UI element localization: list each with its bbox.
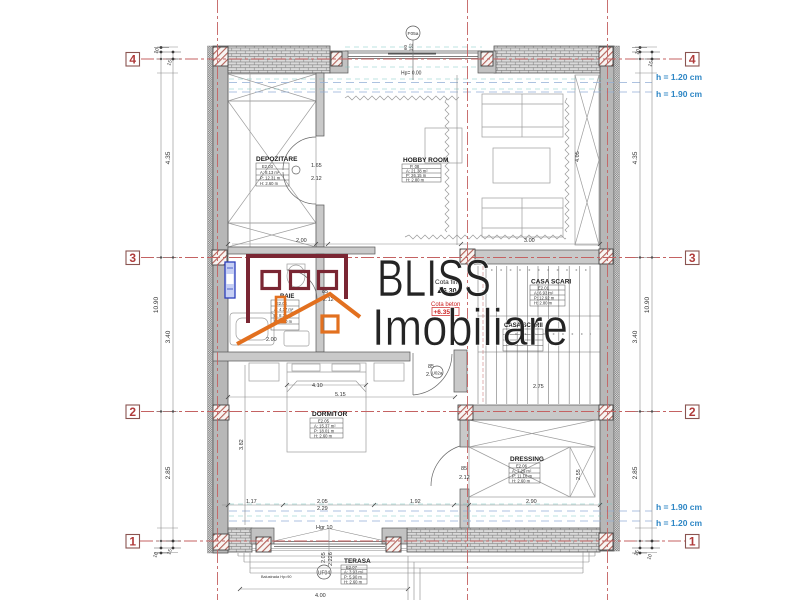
svg-text:1.65: 1.65 xyxy=(311,163,322,169)
svg-text:4.00: 4.00 xyxy=(315,593,326,599)
svg-text:85: 85 xyxy=(461,466,467,472)
svg-text:60: 60 xyxy=(403,44,408,50)
svg-text:10.90: 10.90 xyxy=(153,296,160,313)
svg-text:3.00: 3.00 xyxy=(524,238,535,244)
svg-text:Hgr 10: Hgr 10 xyxy=(316,525,333,531)
svg-text:2.85: 2.85 xyxy=(632,466,639,479)
svg-text:DORMITOR: DORMITOR xyxy=(312,411,348,418)
svg-text:1: 1 xyxy=(689,535,696,549)
svg-text:DRESSING: DRESSING xyxy=(510,456,544,463)
svg-text:H: 2.80 m: H: 2.80 m xyxy=(406,178,425,183)
svg-text:2.00: 2.00 xyxy=(266,337,277,343)
svg-text:2: 2 xyxy=(129,405,136,419)
svg-text:2.05: 2.05 xyxy=(321,552,327,563)
svg-text:4: 4 xyxy=(689,53,696,67)
svg-text:U02a: U02a xyxy=(432,371,443,376)
svg-text:CASA SCARI: CASA SCARI xyxy=(531,279,571,286)
svg-text:P: 12.31 m: P: 12.31 m xyxy=(260,176,281,181)
svg-text:2.55: 2.55 xyxy=(576,469,582,480)
svg-text:UF04: UF04 xyxy=(318,571,330,577)
svg-text:2.90: 2.90 xyxy=(526,499,537,505)
svg-text:2.75: 2.75 xyxy=(533,384,544,390)
svg-text:A: 8.13 m²: A: 8.13 m² xyxy=(260,170,280,175)
svg-text:4.35: 4.35 xyxy=(165,151,172,164)
svg-text:H: 2.60 m: H: 2.60 m xyxy=(344,580,363,585)
svg-text:F05a: F05a xyxy=(408,31,419,37)
svg-text:h = 1.20 cm: h = 1.20 cm xyxy=(656,518,703,528)
svg-text:1.17: 1.17 xyxy=(246,499,257,505)
svg-text:2.05: 2.05 xyxy=(317,499,328,505)
svg-text:4.05: 4.05 xyxy=(575,151,581,162)
svg-text:H: 2.60 m: H: 2.60 m xyxy=(314,434,333,439)
svg-text:2.12: 2.12 xyxy=(311,176,322,182)
svg-text:H: 2.60 m: H: 2.60 m xyxy=(512,479,531,484)
svg-text:3: 3 xyxy=(689,251,696,265)
svg-text:2.85: 2.85 xyxy=(165,466,172,479)
svg-text:4.35: 4.35 xyxy=(632,151,639,164)
svg-text:2.29: 2.29 xyxy=(317,506,328,512)
svg-text:3: 3 xyxy=(129,251,136,265)
svg-text:H: 2.60 m: H: 2.60 m xyxy=(260,181,279,186)
svg-text:10.90: 10.90 xyxy=(644,296,651,313)
svg-text:Imobiliare: Imobiliare xyxy=(372,299,568,357)
svg-text:h = 1.20 cm: h = 1.20 cm xyxy=(656,72,703,82)
svg-text:E2.03: E2.03 xyxy=(262,164,274,169)
svg-text:1.92: 1.92 xyxy=(410,499,421,505)
svg-text:2: 2 xyxy=(689,405,696,419)
svg-text:3.82: 3.82 xyxy=(239,439,245,450)
svg-text:Hp= 0.00: Hp= 0.00 xyxy=(401,71,422,77)
svg-text:1: 1 xyxy=(129,535,136,549)
svg-text:2.00: 2.00 xyxy=(296,238,307,244)
svg-text:Balustrada Hp=90: Balustrada Hp=90 xyxy=(261,575,292,579)
svg-text:3.40: 3.40 xyxy=(165,330,172,343)
svg-text:4.10: 4.10 xyxy=(312,383,323,389)
svg-text:4: 4 xyxy=(129,53,136,67)
svg-text:HOBBY ROOM: HOBBY ROOM xyxy=(403,157,448,164)
svg-text:DEPOZITARE: DEPOZITARE xyxy=(256,156,298,163)
svg-text:h = 1.90 cm: h = 1.90 cm xyxy=(656,502,703,512)
svg-text:h = 1.90 cm: h = 1.90 cm xyxy=(656,89,703,99)
svg-text:5.15: 5.15 xyxy=(335,392,346,398)
svg-text:2.12: 2.12 xyxy=(459,475,470,481)
svg-text:TERASA: TERASA xyxy=(344,558,371,565)
svg-text:3.40: 3.40 xyxy=(632,330,639,343)
